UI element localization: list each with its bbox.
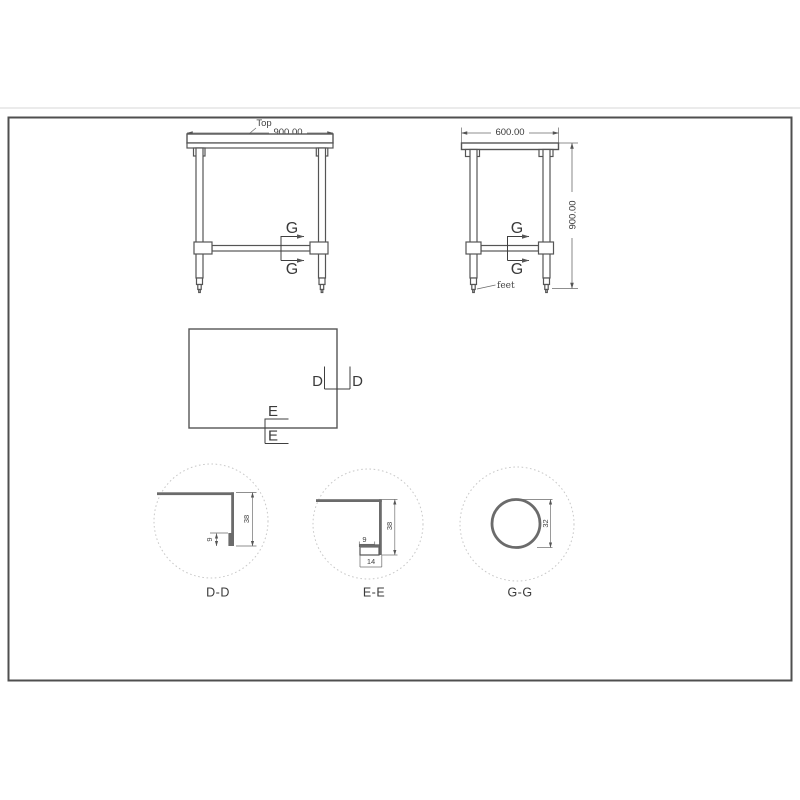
feet-callout: feet: [477, 281, 515, 291]
leg-back: [543, 150, 550, 279]
plan-view: D D E E: [189, 329, 363, 445]
hem-dimension-dd: 9: [205, 533, 228, 546]
detail-gg-label: G-G: [507, 586, 532, 600]
technical-drawing: 900.00 Top G: [0, 0, 800, 800]
fold-dimension-ee: 14: [360, 555, 382, 567]
side-width-dimension: 600.00: [462, 127, 559, 144]
depth-dimension-dd: 38: [236, 493, 257, 547]
brace-socket-left: [466, 242, 481, 254]
side-height-dimension: 900.00: [552, 143, 579, 289]
tube-dia-dim-text: 32: [541, 519, 550, 527]
feet-leader-line: [477, 285, 496, 289]
side-view: 600.00 G G: [462, 127, 579, 293]
brace-socket-right: [310, 242, 328, 254]
side-height-dim-text: 900.00: [568, 200, 579, 229]
leg-left: [196, 148, 203, 278]
tabletop-lip-front: [187, 143, 333, 148]
brace-socket-right: [539, 242, 554, 254]
leg-right: [319, 148, 326, 278]
page-rule-line: [0, 107, 800, 109]
depth-dim-text: 38: [385, 522, 394, 530]
section-letter-e: E: [268, 403, 278, 420]
tabletop-front: [187, 134, 333, 143]
section-letter-g: G: [286, 220, 298, 237]
foot-back: [544, 278, 550, 293]
drawing-canvas: 900.00 Top G: [0, 0, 800, 800]
brace-tube: [481, 246, 539, 252]
detail-boundary-circle: [460, 467, 574, 581]
brace-tube: [212, 246, 310, 252]
section-letter-g: G: [511, 220, 523, 237]
edge-profile-ee: [316, 499, 382, 555]
feet-label: feet: [497, 281, 515, 291]
cross-brace-side: [466, 242, 554, 254]
fold-dim-text: 14: [367, 557, 375, 566]
brace-socket-left: [194, 242, 212, 254]
hem-dim-text: 9: [205, 537, 214, 541]
detail-dd: 9 38 D-D: [154, 464, 268, 600]
tube-cross-section: [492, 500, 540, 548]
tabletop-side: [462, 143, 559, 150]
hem-dim-text: 9: [362, 535, 366, 544]
foot-left: [197, 278, 203, 293]
section-letter-d: D: [352, 373, 363, 390]
foot-front: [471, 278, 477, 293]
section-letter-d: D: [312, 373, 323, 390]
top-label: Top: [256, 118, 271, 129]
edge-profile-dd: [157, 492, 234, 546]
section-letter-g: G: [511, 261, 523, 278]
sheet-border: [9, 118, 792, 681]
depth-dim-text: 38: [242, 515, 251, 523]
side-width-dim-text: 600.00: [495, 127, 524, 138]
leg-front: [470, 150, 477, 279]
front-view: 900.00 Top G: [187, 118, 333, 293]
foot-right: [319, 278, 325, 293]
depth-dimension-ee: 38: [382, 499, 398, 555]
detail-ee: 9 14 38 E-E: [313, 469, 423, 600]
detail-dd-label: D-D: [206, 586, 230, 600]
section-letter-e: E: [268, 428, 278, 445]
detail-ee-label: E-E: [363, 586, 385, 600]
detail-gg: 32 G-G: [460, 467, 574, 600]
section-letter-g: G: [286, 261, 298, 278]
cross-brace-front: [194, 242, 328, 254]
